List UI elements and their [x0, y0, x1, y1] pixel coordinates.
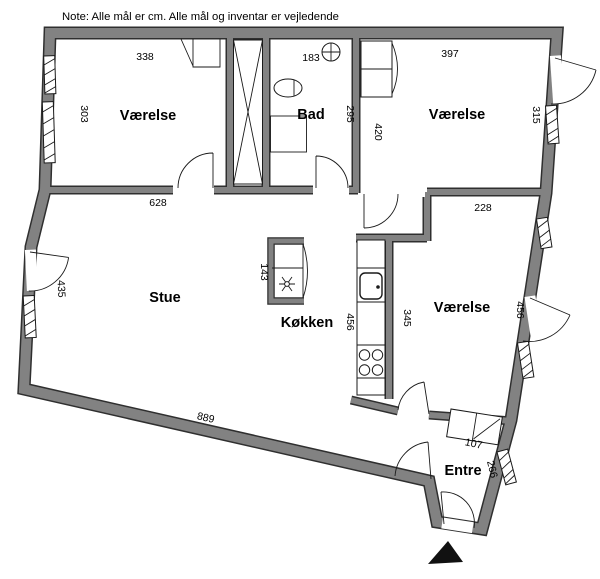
- room-label-bedroom-e: Værelse: [434, 300, 490, 316]
- window-icon: [42, 102, 55, 163]
- dim-bath-depth: 295: [344, 105, 356, 123]
- dim-bedroom-ne-width: 397: [441, 48, 459, 60]
- floorplan: Note: Alle mål er cm. Alle mål og invent…: [0, 0, 600, 579]
- room-label-bedroom-nw: Værelse: [120, 108, 176, 124]
- cooker-symbol-icon: [279, 277, 295, 291]
- room-label-entry: Entre: [444, 463, 481, 479]
- dim-bedroom-nw-depth: 303: [78, 105, 90, 123]
- dim-kitchen-island: 143: [258, 263, 270, 281]
- door-bedroom-e: [398, 382, 429, 414]
- dim-entry-wardrobe: 107: [464, 436, 484, 451]
- door-bath: [316, 156, 348, 188]
- room-label-kitchen: Køkken: [281, 315, 333, 331]
- door-bedroom-ne: [364, 194, 398, 228]
- entrance-arrow-icon: [428, 541, 463, 564]
- plan-note: Note: Alle mål er cm. Alle mål og invent…: [62, 11, 339, 23]
- dim-entry-side: 266: [484, 459, 500, 479]
- dim-bedroom-nw-width: 338: [136, 51, 154, 63]
- room-label-living: Stue: [149, 290, 180, 306]
- room-label-bath: Bad: [297, 107, 324, 123]
- shaft: [234, 40, 263, 184]
- dim-bedroom-e-right: 456: [514, 301, 526, 319]
- dim-bedroom-e-top: 228: [474, 202, 492, 214]
- dim-kitchen-counter: 456: [344, 313, 356, 331]
- dim-bedroom-e-left: 345: [401, 309, 413, 327]
- wardrobe-bedroom-ne-icon: [361, 41, 398, 97]
- faucet-icon: [376, 285, 380, 289]
- dim-bedroom-ne-depth-right: 315: [530, 106, 542, 124]
- dim-bath-width: 183: [302, 52, 320, 64]
- window-icon: [44, 56, 56, 94]
- dim-living-left: 435: [55, 280, 68, 298]
- closet-bedroom-nw-icon: [181, 39, 220, 67]
- door-gaps: [25, 55, 564, 533]
- island-door-swing: [303, 244, 308, 298]
- door-bedroom-nw: [178, 153, 213, 188]
- window-icon: [546, 105, 560, 144]
- dim-living-top: 628: [149, 197, 167, 209]
- window-icon: [23, 295, 36, 337]
- toilet-icon: [274, 79, 302, 97]
- room-label-bedroom-ne: Værelse: [429, 107, 485, 123]
- floorplan-svg: Note: Alle mål er cm. Alle mål og invent…: [0, 0, 600, 579]
- dim-bedroom-ne-depth-left: 420: [372, 123, 384, 141]
